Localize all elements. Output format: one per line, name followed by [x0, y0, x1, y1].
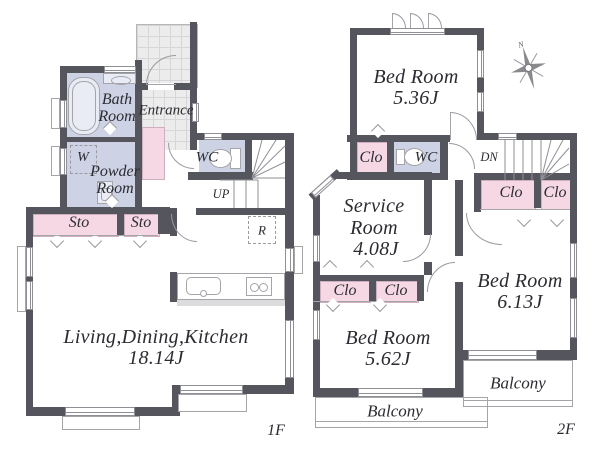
window — [311, 175, 335, 198]
room-label-service: Service — [344, 196, 405, 216]
room-label-wc-2f: WC — [415, 151, 438, 166]
room-label-service2: Room — [350, 218, 398, 238]
room-label-service-area: 4.08J — [353, 239, 398, 259]
closet-mark — [323, 260, 337, 274]
label-balcony-left: Balcony — [367, 403, 423, 420]
balcony-rail-line — [464, 400, 572, 401]
window — [477, 50, 484, 78]
closet-mark — [550, 213, 564, 227]
casement-arc — [428, 13, 442, 28]
label-clo-service-left: Clo — [333, 283, 356, 299]
closet-front-line — [480, 209, 570, 210]
casement-arc — [410, 13, 424, 28]
wall — [313, 195, 320, 397]
window — [498, 133, 517, 140]
window — [358, 388, 423, 397]
label-clo-bed3-left: Clo — [499, 185, 522, 201]
door-arc — [466, 213, 502, 245]
wall — [336, 172, 432, 179]
door-opening — [455, 256, 463, 282]
room-label-bed2-area: 5.62J — [365, 349, 410, 369]
window — [313, 310, 320, 340]
closet-mark — [517, 213, 531, 227]
stairs-down-icon — [497, 140, 570, 180]
svg-text:N: N — [516, 39, 525, 50]
wall — [347, 135, 450, 142]
floorplan: Bath Room Powder Room Entrance WC W R UP… — [0, 0, 600, 450]
wall — [369, 281, 376, 301]
window — [477, 92, 484, 112]
label-clo-service-right: Clo — [384, 283, 407, 299]
floor-label-2f: 2F — [557, 422, 575, 438]
door-arc — [449, 143, 475, 169]
room-label-bed3: Bed Room — [477, 271, 562, 291]
room-label-bed1-area: 5.36J — [393, 88, 438, 108]
closet-front-line — [33, 235, 158, 236]
wall — [534, 180, 541, 208]
wall — [477, 133, 577, 140]
window — [570, 298, 577, 338]
wall — [387, 142, 394, 173]
label-clo-bed3-right: Clo — [543, 185, 566, 201]
label-clo-hall: Clo — [359, 150, 382, 166]
wall — [474, 173, 481, 212]
label-balcony-right: Balcony — [490, 375, 546, 392]
window — [468, 350, 537, 360]
window — [570, 243, 577, 278]
compass-icon: N — [506, 34, 550, 90]
room-label-bed1: Bed Room — [373, 67, 458, 87]
room-label-bed2: Bed Room — [345, 328, 430, 348]
wall — [455, 180, 463, 397]
balcony-rail-line — [316, 421, 487, 422]
door-arc — [450, 112, 477, 140]
casement-arc — [392, 13, 406, 28]
label-stairs-down: DN — [480, 151, 497, 164]
wall — [417, 275, 424, 301]
window — [313, 235, 320, 262]
wall — [350, 28, 357, 180]
floor-2f: N Bed Room 5.36J Clo WC DN Clo Clo Servi… — [0, 0, 600, 450]
wall — [477, 28, 484, 140]
window — [390, 28, 445, 35]
closet-mark — [360, 260, 374, 274]
room-label-bed3-area: 6.13J — [497, 292, 542, 312]
